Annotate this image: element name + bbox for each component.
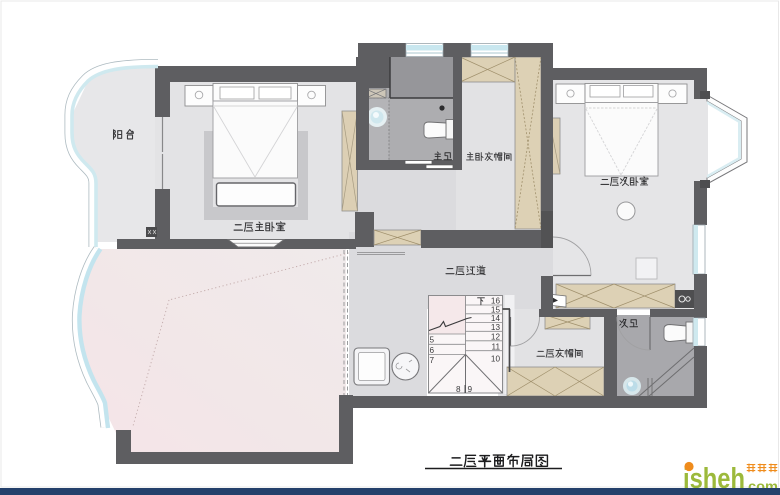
svg-text:11: 11 xyxy=(492,342,501,351)
svg-text:10: 10 xyxy=(491,355,501,364)
svg-text:5: 5 xyxy=(430,336,435,345)
svg-text:16: 16 xyxy=(491,297,501,306)
svg-text:9: 9 xyxy=(468,385,473,394)
svg-text:7: 7 xyxy=(430,356,435,365)
svg-text:8: 8 xyxy=(456,385,461,394)
svg-text:14: 14 xyxy=(491,314,501,323)
svg-text:13: 13 xyxy=(491,323,501,332)
svg-text:12: 12 xyxy=(491,332,501,341)
svg-text:15: 15 xyxy=(491,305,501,314)
svg-text:6: 6 xyxy=(430,346,435,355)
